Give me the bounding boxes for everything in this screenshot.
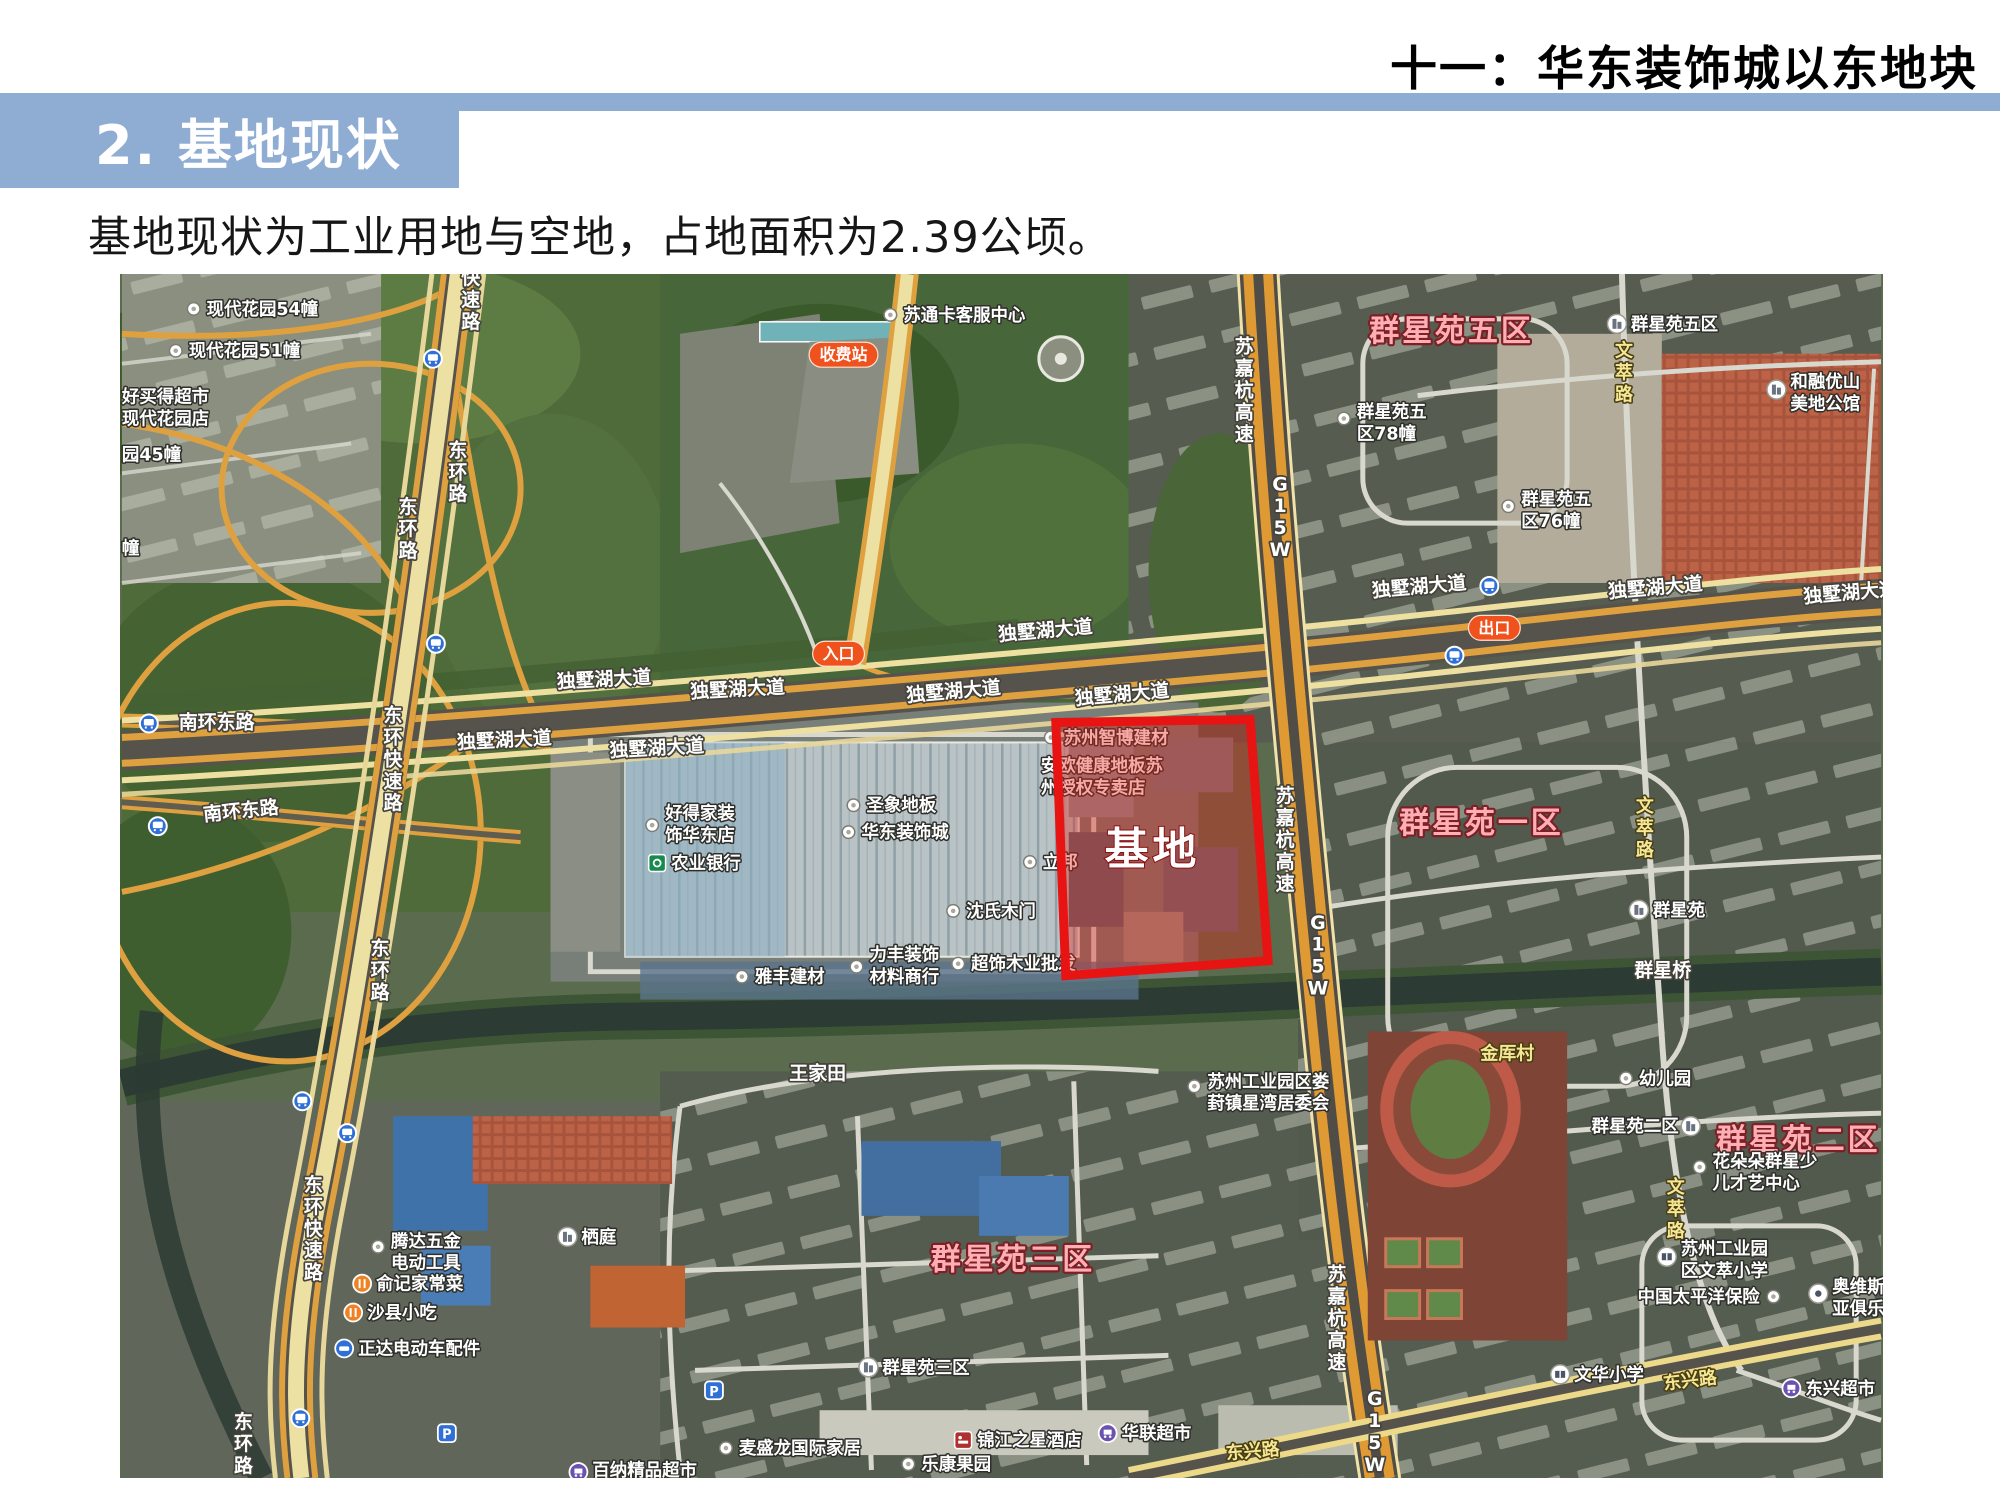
map-label: 百纳精品超市 — [592, 1460, 697, 1478]
map-label: 幼儿园 — [1639, 1068, 1691, 1089]
building-icon — [1681, 1117, 1700, 1136]
slide-canvas: 十一：华东装饰城以东地块 2. 基地现状 基地现状为工业用地与空地，占地面积为2… — [0, 0, 2000, 1500]
svg-text:P: P — [709, 1385, 718, 1400]
map-label: 沈氏木门 — [966, 901, 1036, 922]
body-text: 基地现状为工业用地与空地，占地面积为2.39公顷。 — [88, 203, 1112, 265]
map-label: 群星苑五区 — [1369, 314, 1533, 349]
map-label: 东环路 — [234, 1410, 254, 1477]
satellite-map: PP独墅湖大道独墅湖大道独墅湖大道独墅湖大道独墅湖大道独墅湖大道独墅湖大道独墅湖… — [120, 274, 1883, 1478]
map-label: 现代花园51幢 — [189, 341, 301, 362]
map-label: 群星苑一区 — [1399, 806, 1563, 841]
map-label: 快速路 — [461, 274, 481, 333]
map-label: 苏嘉杭高速 — [1235, 335, 1254, 446]
svg-text:出口: 出口 — [1478, 618, 1510, 637]
restaurant-icon — [344, 1304, 362, 1322]
svg-text:收费站: 收费站 — [820, 345, 868, 364]
map-label: 群星桥 — [1633, 959, 1691, 982]
map-label: 中国太平洋保险 — [1638, 1287, 1761, 1308]
map-label: 群星苑二区 — [1592, 1116, 1679, 1137]
map-label: 俞记家常菜 — [375, 1274, 464, 1295]
section-banner: 2. 基地现状 — [0, 93, 459, 188]
map-label: 群星苑三区 — [882, 1357, 969, 1378]
section-title: 2. 基地现状 — [0, 101, 402, 180]
bank-icon — [649, 855, 666, 872]
svg-text:入口: 入口 — [823, 644, 855, 663]
building-icon — [859, 1358, 878, 1377]
svg-text:P: P — [442, 1428, 451, 1443]
building-icon — [1607, 314, 1626, 333]
map-label: 雅丰建材 — [754, 967, 825, 988]
map-label: 群星苑 — [1653, 900, 1706, 921]
hotel-icon — [955, 1432, 972, 1449]
map-label: 文萃路 — [1615, 340, 1634, 406]
page-title: 十一：华东装饰城以东地块 — [978, 30, 1978, 99]
map-label: 王家田 — [789, 1061, 846, 1084]
map-label: 东环快速路 — [304, 1173, 324, 1284]
map-label: 苏嘉杭高速 — [1327, 1263, 1346, 1374]
building-icon — [1767, 380, 1786, 399]
map-label: 群星苑五区 — [1631, 314, 1718, 335]
map-label: 超饰木业批发 — [971, 954, 1076, 975]
stadium-layer — [1368, 1031, 1567, 1340]
map-label: 圣象地板 — [866, 795, 936, 816]
map-label: 群星苑三区 — [931, 1243, 1095, 1278]
building-icon — [558, 1227, 577, 1246]
map-label: 华东装饰城 — [861, 822, 949, 843]
map-label: 现代花园54幢 — [207, 299, 319, 320]
map-label: 锦江之星酒店 — [977, 1430, 1082, 1451]
map-label: 文萃路 — [1636, 795, 1655, 861]
map-label: 乐康果园 — [921, 1454, 991, 1475]
map-label: 苏通卡客服中心 — [903, 305, 1026, 326]
map-label: 东环路 — [448, 438, 468, 505]
map-label: 幢 — [122, 538, 140, 559]
map-label: 园45幢 — [122, 444, 182, 465]
restaurant-icon — [353, 1275, 371, 1293]
map-label: 金厍村 — [1479, 1042, 1534, 1064]
map-label: 东兴超市 — [1805, 1378, 1875, 1399]
map-label: 农业银行 — [670, 853, 741, 874]
map-label: 麦盛龙国际家居 — [739, 1438, 861, 1459]
map-label: 栖庭 — [581, 1227, 616, 1248]
map-label: 苏嘉杭高速 — [1276, 784, 1295, 895]
map-label: 文华小学 — [1574, 1364, 1644, 1385]
map-label: 南环东路 — [179, 710, 256, 733]
map-label: 文萃路 — [1667, 1176, 1686, 1242]
map-label: 东环快速路 — [384, 704, 404, 815]
map-graphic: PP独墅湖大道独墅湖大道独墅湖大道独墅湖大道独墅湖大道独墅湖大道独墅湖大道独墅湖… — [120, 274, 1883, 1478]
map-label: 华联超市 — [1122, 1423, 1192, 1444]
map-label: 沙县小吃 — [367, 1303, 437, 1324]
building-icon — [1629, 900, 1648, 919]
map-label: 正达电动车配件 — [358, 1338, 480, 1359]
map-label: 东环路 — [399, 495, 419, 562]
site-label: 基地 — [1105, 824, 1201, 875]
map-label: 东环路 — [371, 937, 391, 1004]
